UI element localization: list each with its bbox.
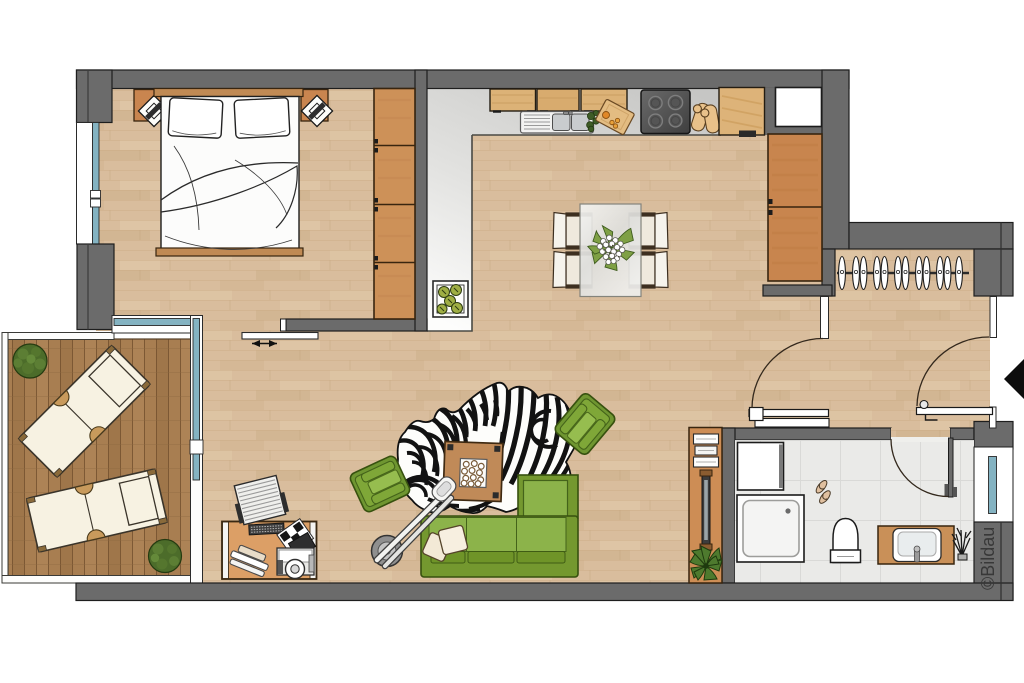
svg-text:©Bildau: ©Bildau	[978, 527, 998, 590]
